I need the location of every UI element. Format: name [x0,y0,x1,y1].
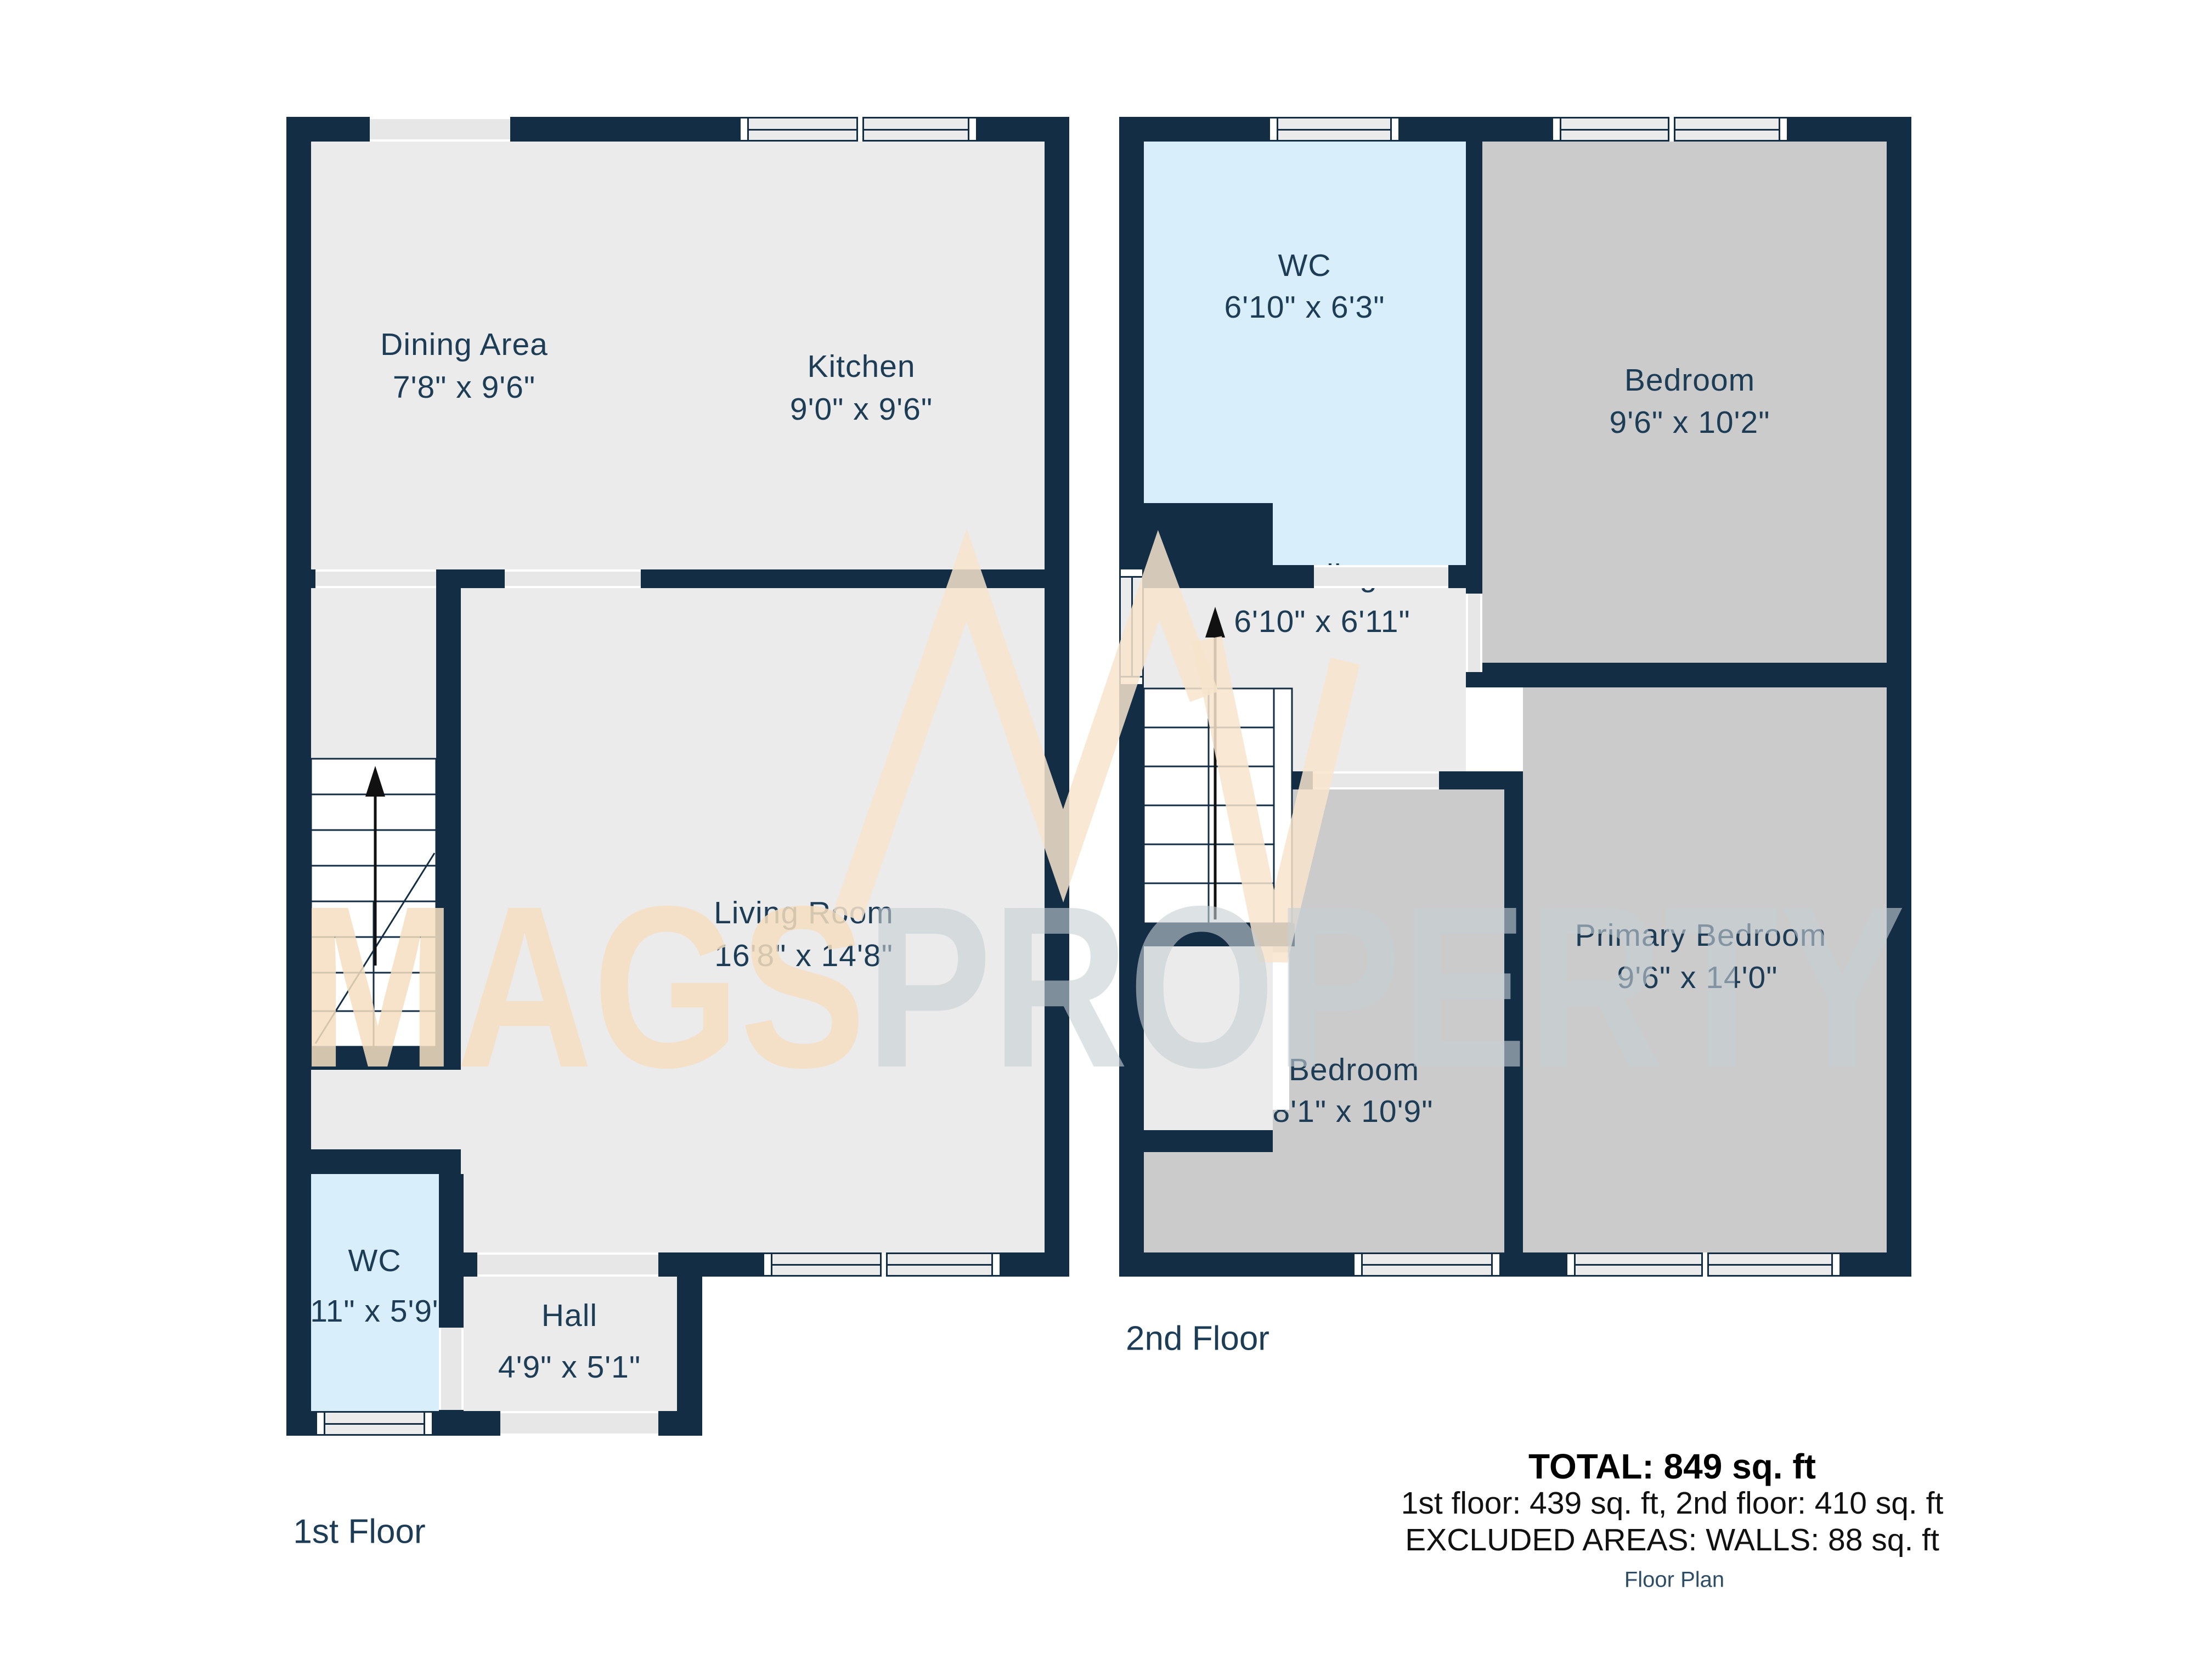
floor-plan-canvas: Dining Area 7'8" x 9'6" Kitchen 9'0" x 9… [0,0,2212,1659]
excluded-area-line: EXCLUDED AREAS: WALLS: 88 sq. ft [1401,1522,1944,1559]
floor-areas-line: 1st floor: 439 sq. ft, 2nd floor: 410 sq… [1401,1485,1944,1522]
area-summary: TOTAL: 849 sq. ft 1st floor: 439 sq. ft,… [1401,1448,1944,1559]
stairs-layer [0,0,2212,1659]
total-area-line: TOTAL: 849 sq. ft [1401,1448,1944,1485]
f2-staircase [1144,607,1292,923]
floor1-title: 1st Floor [293,1513,425,1551]
floor-plan-caption: Floor Plan [1624,1568,1724,1593]
f1-staircase [311,759,436,1047]
floor2-title: 2nd Floor [1126,1319,1269,1358]
